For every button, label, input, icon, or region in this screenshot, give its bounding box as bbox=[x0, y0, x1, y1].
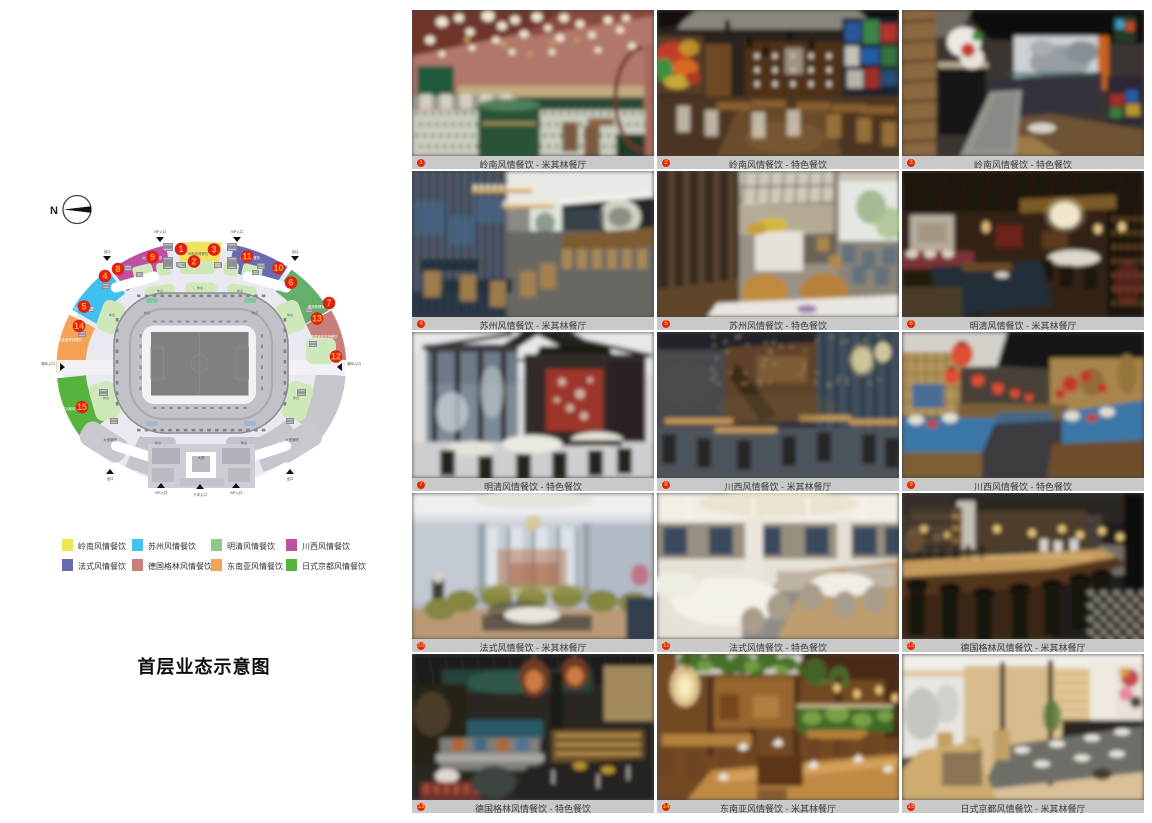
svg-text:休息: 休息 bbox=[103, 395, 109, 400]
svg-text:7: 7 bbox=[326, 298, 331, 308]
svg-text:14: 14 bbox=[74, 321, 84, 331]
svg-text:12: 12 bbox=[331, 352, 341, 362]
svg-text:11: 11 bbox=[242, 252, 252, 262]
svg-text:8: 8 bbox=[115, 264, 120, 274]
svg-text:观众入口: 观众入口 bbox=[41, 361, 55, 366]
svg-text:N: N bbox=[50, 205, 58, 217]
svg-text:休息: 休息 bbox=[144, 310, 150, 315]
svg-text:休息: 休息 bbox=[252, 310, 258, 315]
svg-text:东南亚风情餐饮: 东南亚风情餐饮 bbox=[58, 337, 82, 342]
svg-text:休息: 休息 bbox=[197, 285, 203, 290]
svg-text:VIP入口: VIP入口 bbox=[154, 230, 166, 234]
svg-text:岭南风情餐饮: 岭南风情餐饮 bbox=[188, 251, 209, 256]
svg-text:休息: 休息 bbox=[155, 440, 161, 445]
svg-text:出口: 出口 bbox=[292, 249, 299, 254]
svg-text:大堂酒吧: 大堂酒吧 bbox=[285, 437, 299, 442]
svg-text:休息: 休息 bbox=[287, 312, 293, 317]
svg-text:出口: 出口 bbox=[104, 249, 111, 254]
svg-text:5: 5 bbox=[81, 302, 86, 312]
svg-text:10: 10 bbox=[273, 263, 283, 273]
svg-text:15: 15 bbox=[77, 402, 87, 412]
svg-text:9: 9 bbox=[150, 252, 155, 262]
svg-text:VIP入口: VIP入口 bbox=[231, 230, 243, 234]
svg-text:大堂酒吧: 大堂酒吧 bbox=[103, 437, 117, 442]
svg-text:休息: 休息 bbox=[109, 312, 115, 317]
svg-text:休息: 休息 bbox=[241, 440, 247, 445]
svg-text:观众入口: 观众入口 bbox=[347, 361, 361, 366]
svg-text:13: 13 bbox=[312, 314, 322, 324]
svg-text:出口: 出口 bbox=[107, 476, 114, 481]
svg-text:十字入口: 十字入口 bbox=[193, 492, 207, 497]
svg-text:2: 2 bbox=[191, 257, 196, 267]
svg-text:VIP入口: VIP入口 bbox=[155, 491, 167, 495]
svg-text:出口: 出口 bbox=[287, 476, 294, 481]
svg-text:德国格林风情餐饮: 德国格林风情餐饮 bbox=[310, 334, 338, 339]
svg-text:4: 4 bbox=[102, 271, 107, 281]
svg-text:6: 6 bbox=[288, 278, 293, 288]
svg-text:大堂: 大堂 bbox=[198, 455, 205, 460]
svg-text:休息: 休息 bbox=[237, 288, 243, 293]
svg-text:休息: 休息 bbox=[157, 288, 163, 293]
svg-text:VIP入口: VIP入口 bbox=[230, 491, 242, 495]
svg-text:休息: 休息 bbox=[293, 395, 299, 400]
svg-text:1: 1 bbox=[178, 244, 183, 254]
svg-text:3: 3 bbox=[211, 245, 216, 255]
